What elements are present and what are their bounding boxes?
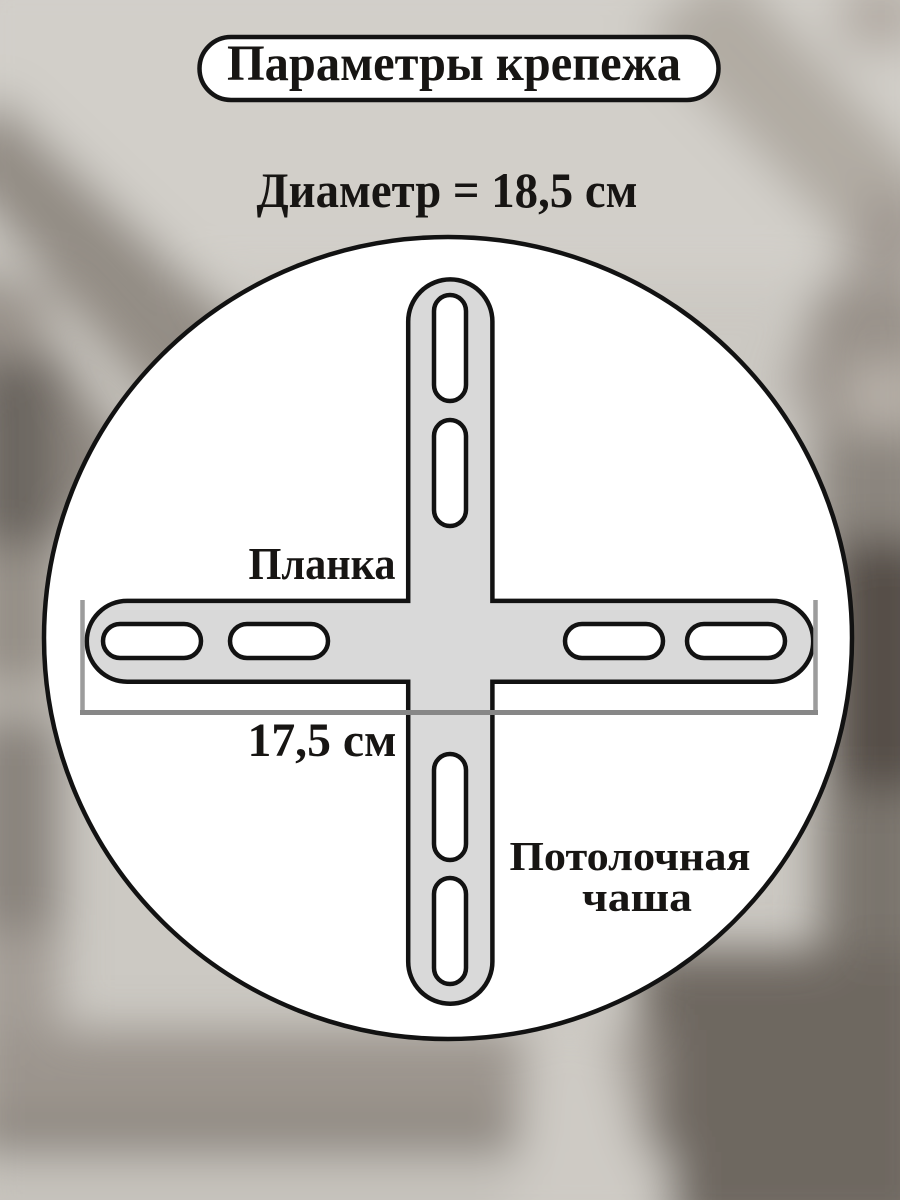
- svg-text:17,5 см: 17,5 см: [248, 714, 397, 767]
- svg-text:Планка: Планка: [249, 538, 396, 589]
- svg-text:Потолочная: Потолочная: [510, 833, 751, 879]
- svg-text:Диаметр = 18,5 см: Диаметр = 18,5 см: [257, 162, 638, 218]
- svg-text:Параметры крепежа: Параметры крепежа: [227, 36, 681, 92]
- svg-text:чаша: чаша: [582, 874, 692, 920]
